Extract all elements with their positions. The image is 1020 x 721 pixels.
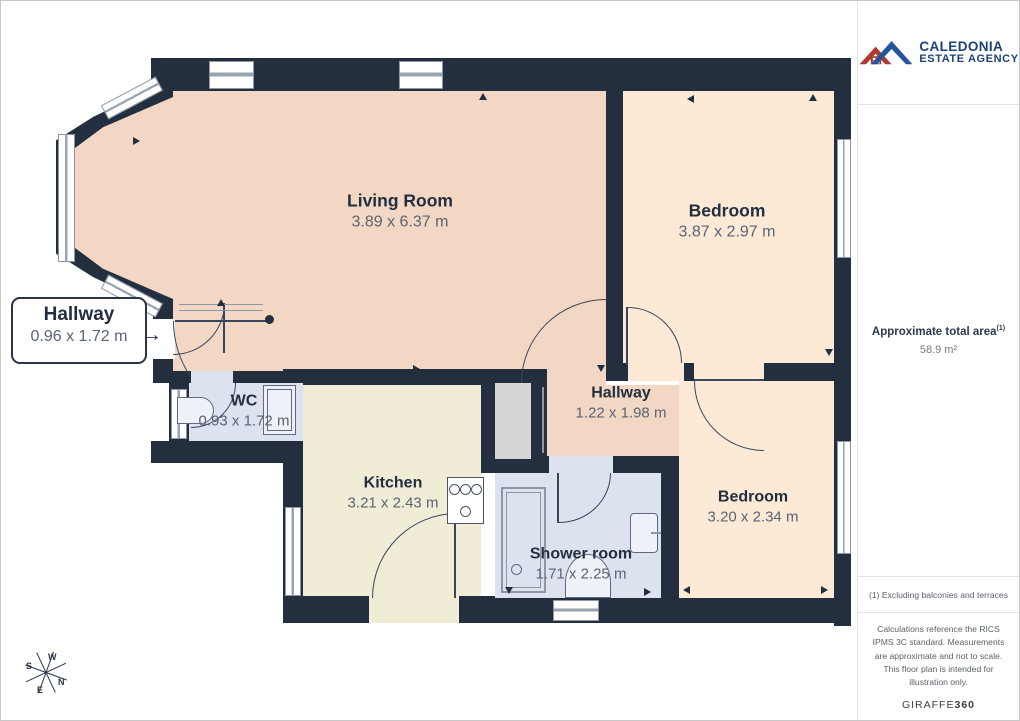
room-label-bedroom1: Bedroom 3.87 x 2.97 m	[679, 201, 776, 242]
door-gap	[549, 456, 613, 473]
direction-arrow	[809, 94, 817, 101]
direction-arrow	[683, 586, 690, 594]
window	[553, 600, 599, 621]
total-area-section: Approximate total area(1) 58.9 m²	[858, 105, 1019, 577]
disclaimer-section: Calculations reference the RICS IPMS 3C …	[858, 613, 1019, 720]
door-gap	[628, 363, 684, 381]
room-label-wc: WC 0.93 x 1.72 m	[199, 393, 290, 430]
direction-arrow	[821, 586, 828, 594]
direction-arrow	[413, 365, 420, 373]
window	[837, 139, 851, 258]
window	[58, 134, 75, 262]
compass-e: E	[37, 685, 43, 695]
provider-logo: GIRAFFE360	[871, 697, 1006, 713]
compass-s: S	[26, 661, 32, 671]
window	[399, 61, 443, 89]
compass-n: N	[58, 677, 65, 687]
window	[285, 507, 301, 596]
stove-icon	[447, 477, 484, 524]
floorplan-page: Living Room 3.89 x 6.37 m Bedroom 3.87 x…	[0, 0, 1020, 721]
door-hinge-dot	[265, 315, 274, 324]
drain-circle	[511, 564, 522, 575]
sink-tap-line	[651, 532, 661, 534]
agency-logo: CALEDONIA ESTATE AGENCY	[858, 1, 1019, 105]
window	[209, 61, 254, 89]
room-label-living: Living Room 3.89 x 6.37 m	[347, 191, 453, 232]
room-label-bedroom2: Bedroom 3.20 x 2.34 m	[708, 489, 799, 526]
agency-logo-icon	[858, 35, 914, 71]
wall	[661, 456, 679, 598]
window	[837, 441, 851, 554]
door-leaf	[175, 320, 273, 322]
closet-floor	[495, 383, 531, 459]
direction-arrow	[505, 587, 513, 594]
direction-arrow	[597, 365, 605, 372]
door-swing	[173, 321, 273, 375]
room-label-kitchen: Kitchen 3.21 x 2.43 m	[348, 475, 439, 512]
direction-arrow	[644, 588, 651, 596]
compass-w: W	[48, 652, 57, 662]
closet-slider-line	[542, 387, 544, 453]
direction-arrow	[479, 93, 487, 100]
wall	[481, 596, 851, 623]
door-gap	[369, 596, 459, 623]
info-panel: CALEDONIA ESTATE AGENCY Approximate tota…	[857, 1, 1019, 720]
direction-arrow	[133, 137, 140, 145]
disclaimer-text: Calculations reference the RICS IPMS 3C …	[873, 624, 1005, 687]
wall	[606, 58, 624, 368]
footnote-ref: (1)	[997, 325, 1006, 332]
wall	[151, 441, 303, 463]
callout-arrow-icon: →	[141, 323, 162, 347]
direction-arrow	[687, 95, 694, 103]
footnote-text: (1) Excluding balconies and terraces	[858, 577, 1019, 613]
direction-arrow	[825, 349, 833, 356]
entry-step-line	[179, 310, 263, 311]
agency-name: CALEDONIA ESTATE AGENCY	[919, 40, 1018, 66]
room-label-shower: Shower room 1.71 x 2.25 m	[530, 546, 632, 583]
hallway-callout: Hallway 0.96 x 1.72 m	[11, 297, 147, 364]
room-label-hallway2: Hallway 1.22 x 1.98 m	[576, 385, 667, 422]
wall	[151, 58, 851, 91]
total-area-value: 58.9 m²	[920, 344, 957, 356]
total-area-label: Approximate total area(1)	[872, 325, 1005, 338]
direction-arrow	[217, 299, 225, 306]
